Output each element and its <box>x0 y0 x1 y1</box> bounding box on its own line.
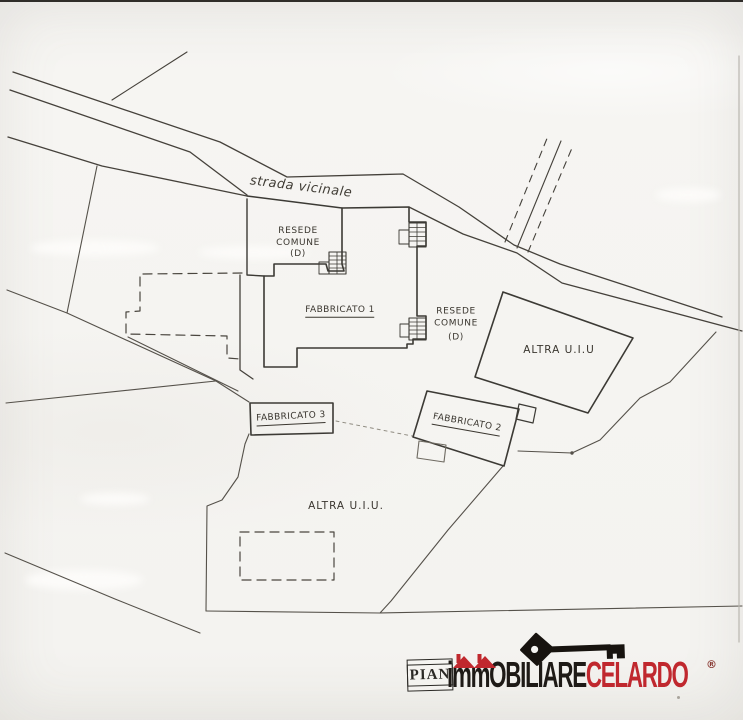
fabbricato1-label: FABBRICATO 1 <box>305 305 374 318</box>
altra-uiu-right-label: ALTRA U.I.U <box>523 344 595 356</box>
logo-text-celardo: CELARDO <box>586 654 688 695</box>
resede-line: RESEDE <box>276 226 320 238</box>
parcel-boundaries <box>5 166 742 633</box>
stairs-icon <box>400 318 426 340</box>
logo-text-obiliare: OBILIARE <box>489 654 586 695</box>
dashed-area-outline <box>240 532 334 580</box>
connector-line <box>336 421 412 436</box>
resede-line: (D) <box>276 249 320 261</box>
resede-line: RESEDE <box>434 306 478 318</box>
altra-uiu-bottom-label: ALTRA U.I.U. <box>308 500 384 512</box>
scanned-site-plan-page: strada vicinale RESEDE COMUNE (D) FABBRI… <box>0 0 743 720</box>
track-path <box>505 136 572 252</box>
boundary-point <box>570 451 573 454</box>
road-lines <box>8 52 742 331</box>
resede-comune-label-1: RESEDE COMUNE (D) <box>276 226 320 261</box>
resede-line: COMUNE <box>276 237 320 249</box>
scan-dot-artifact <box>677 696 680 699</box>
registered-mark: ® <box>706 658 717 671</box>
house-roof-icon <box>473 653 497 669</box>
resede-line: COMUNE <box>434 318 478 330</box>
resede-comune-label-2: RESEDE COMUNE (D) <box>434 306 478 344</box>
fabbricato1-outline <box>247 196 426 367</box>
dashed-annex-outline <box>126 273 242 359</box>
site-plan-drawing <box>0 0 743 720</box>
stairs-icon <box>399 223 426 247</box>
resede-line: (D) <box>434 332 478 344</box>
